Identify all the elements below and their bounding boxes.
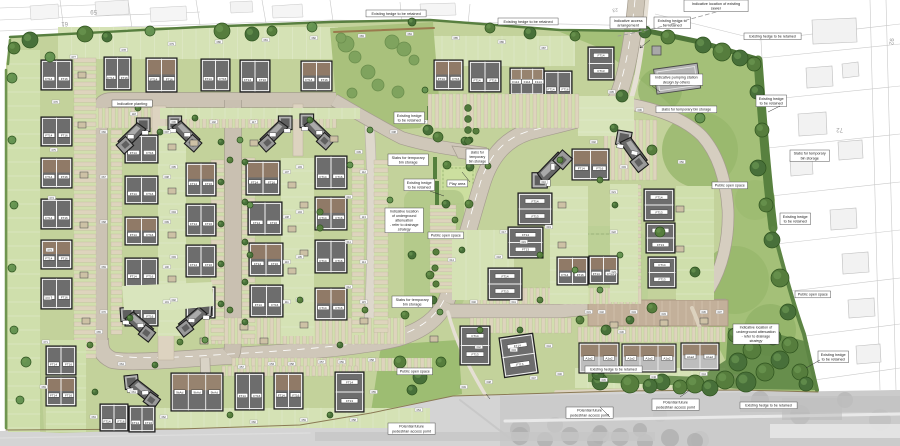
- svg-text:080: 080: [217, 40, 222, 44]
- svg-text:FT14: FT14: [130, 233, 137, 237]
- svg-text:pedestrian access point: pedestrian access point: [570, 413, 609, 417]
- svg-text:098: 098: [165, 175, 170, 179]
- svg-text:FT16: FT16: [321, 78, 328, 82]
- svg-text:103: 103: [298, 165, 303, 169]
- svg-text:FT14: FT14: [438, 77, 445, 81]
- svg-text:018: 018: [497, 255, 502, 259]
- svg-text:FT16: FT16: [596, 167, 603, 171]
- svg-text:068: 068: [102, 220, 107, 224]
- svg-text:F114: F114: [524, 80, 531, 84]
- svg-text:C40: C40: [651, 375, 656, 379]
- svg-text:062: 062: [162, 415, 167, 419]
- svg-text:FT14: FT14: [103, 420, 110, 424]
- svg-text:FT16: FT16: [561, 88, 568, 92]
- svg-text:FT14: FT14: [50, 363, 57, 367]
- svg-text:108: 108: [285, 215, 290, 219]
- svg-text:Existing hedge: Existing hedge: [397, 114, 422, 118]
- svg-text:FT14: FT14: [346, 380, 353, 384]
- svg-text:Indicative access: Indicative access: [614, 19, 643, 23]
- svg-text:047: 047: [532, 376, 537, 380]
- svg-text:019: 019: [547, 225, 552, 229]
- svg-text:095: 095: [172, 165, 177, 169]
- svg-text:112: 112: [362, 170, 367, 174]
- svg-text:100: 100: [165, 265, 170, 269]
- svg-text:107: 107: [285, 170, 290, 174]
- svg-text:FT16: FT16: [146, 151, 153, 155]
- svg-text:FT16: FT16: [146, 275, 153, 279]
- svg-text:101: 101: [165, 300, 170, 304]
- svg-text:030: 030: [620, 330, 625, 334]
- svg-text:059: 059: [302, 418, 307, 422]
- svg-text:069: 069: [102, 265, 107, 269]
- svg-text:FT14: FT14: [45, 77, 52, 81]
- svg-text:037: 037: [718, 310, 723, 314]
- svg-text:003: 003: [622, 165, 627, 169]
- svg-text:064: 064: [120, 362, 125, 366]
- svg-text:FT14: FT14: [45, 134, 52, 138]
- svg-text:FT16: FT16: [61, 216, 68, 220]
- svg-text:FT13: FT13: [471, 353, 478, 357]
- svg-text:071: 071: [44, 340, 49, 344]
- svg-text:008: 008: [392, 130, 397, 134]
- svg-text:Slabs for temporary: Slabs for temporary: [794, 152, 826, 156]
- svg-text:FT14: FT14: [130, 275, 137, 279]
- svg-text:to be retained: to be retained: [398, 119, 421, 123]
- svg-text:099: 099: [165, 220, 170, 224]
- svg-text:104: 104: [298, 210, 303, 214]
- svg-text:FT14: FT14: [150, 77, 157, 81]
- svg-text:074: 074: [50, 196, 55, 200]
- svg-text:FT14: FT14: [578, 167, 585, 171]
- svg-text:087: 087: [542, 46, 547, 50]
- svg-text:Indicative location of: Indicative location of: [740, 326, 773, 330]
- svg-text:063: 063: [92, 415, 97, 419]
- svg-text:FT14: FT14: [531, 199, 538, 203]
- svg-text:72: 72: [836, 126, 843, 132]
- svg-text:Potential future: Potential future: [399, 425, 424, 429]
- svg-text:042: 042: [477, 345, 482, 349]
- svg-text:F114: F114: [512, 80, 519, 84]
- svg-text:086: 086: [500, 40, 505, 44]
- svg-text:072: 072: [46, 296, 51, 300]
- svg-text:082: 082: [312, 36, 317, 40]
- svg-text:FT14: FT14: [190, 222, 197, 226]
- svg-text:FT14: FT14: [107, 76, 114, 80]
- svg-text:FT13: FT13: [531, 214, 538, 218]
- svg-text:FT14: FT14: [130, 192, 137, 196]
- svg-text:Existing hedge: Existing hedge: [783, 215, 808, 219]
- svg-text:077: 077: [72, 55, 77, 59]
- svg-text:Slabs for temporary: Slabs for temporary: [392, 156, 425, 160]
- svg-text:049: 049: [462, 385, 467, 389]
- svg-text:FT16: FT16: [61, 175, 68, 179]
- svg-text:FT16: FT16: [489, 79, 496, 83]
- svg-text:slabs for: slabs for: [471, 151, 485, 155]
- svg-text:9bAd: 9bAd: [193, 390, 201, 394]
- svg-text:FT14: FT14: [45, 216, 52, 220]
- svg-text:FT13: FT13: [597, 69, 604, 73]
- svg-text:102: 102: [212, 120, 217, 124]
- svg-text:065: 065: [97, 330, 102, 334]
- svg-text:FT16: FT16: [292, 393, 299, 397]
- svg-text:114: 114: [362, 260, 367, 264]
- svg-text:FT16: FT16: [205, 263, 212, 267]
- svg-text:A1a2: A1a2: [645, 356, 653, 360]
- svg-text:A1a2: A1a2: [663, 356, 671, 360]
- svg-text:FT14: FT14: [253, 221, 260, 225]
- svg-text:096: 096: [172, 120, 177, 124]
- svg-text:FT16: FT16: [253, 394, 260, 398]
- svg-text:strategy: strategy: [750, 339, 763, 343]
- svg-text:044: 044: [702, 372, 707, 376]
- svg-text:017: 017: [502, 230, 507, 234]
- svg-text:040: 040: [472, 300, 477, 304]
- svg-text:014: 014: [450, 258, 455, 262]
- svg-text:FT14: FT14: [319, 259, 326, 263]
- svg-text:pedestrian access point: pedestrian access point: [392, 429, 431, 433]
- svg-text:FT16: FT16: [271, 262, 278, 266]
- svg-text:FT16: FT16: [271, 303, 278, 307]
- svg-text:- refer to drainage: - refer to drainage: [390, 223, 419, 227]
- svg-text:009: 009: [357, 150, 362, 154]
- svg-text:046: 046: [558, 372, 563, 376]
- svg-text:FT14: FT14: [593, 272, 600, 276]
- svg-text:FT14: FT14: [561, 273, 568, 277]
- svg-text:to be retained: to be retained: [784, 220, 807, 224]
- svg-text:A1a2: A1a2: [687, 355, 695, 359]
- svg-text:FT16: FT16: [452, 77, 459, 81]
- svg-text:044: 044: [547, 344, 552, 348]
- svg-text:010: 010: [347, 195, 352, 199]
- svg-text:C56: C56: [269, 362, 274, 366]
- svg-text:097: 097: [165, 130, 170, 134]
- svg-text:Existing hedge to be retained: Existing hedge to be retained: [745, 404, 792, 408]
- svg-text:FT14: FT14: [473, 79, 480, 83]
- svg-text:Indicative location of existin: Indicative location of existing: [692, 2, 740, 6]
- svg-text:bin storage: bin storage: [801, 156, 819, 160]
- svg-text:079: 079: [170, 42, 175, 46]
- svg-text:067: 067: [102, 175, 107, 179]
- svg-text:FT16: FT16: [61, 257, 68, 261]
- svg-text:FT13: FT13: [522, 248, 529, 252]
- svg-text:FT14: FT14: [278, 393, 285, 397]
- svg-text:59: 59: [90, 8, 97, 14]
- svg-text:design by others: design by others: [663, 80, 690, 84]
- svg-text:Potential future: Potential future: [577, 409, 602, 413]
- svg-text:066: 066: [102, 130, 107, 134]
- svg-text:073: 073: [48, 248, 53, 252]
- svg-text:FT16: FT16: [335, 216, 342, 220]
- svg-text:FT14: FT14: [501, 274, 508, 278]
- svg-text:slabs for temporary bin storag: slabs for temporary bin storage: [662, 108, 712, 112]
- svg-text:A1a2: A1a2: [627, 356, 635, 360]
- svg-text:005: 005: [610, 90, 615, 94]
- svg-text:Public open space: Public open space: [400, 370, 430, 374]
- svg-text:arrangement: arrangement: [617, 24, 639, 28]
- svg-text:FT16: FT16: [219, 77, 226, 81]
- svg-text:FT14: FT14: [130, 151, 137, 155]
- svg-text:057: 057: [320, 360, 325, 364]
- svg-text:054: 054: [417, 408, 422, 412]
- svg-text:036: 036: [702, 310, 707, 314]
- svg-text:FT16: FT16: [268, 180, 275, 184]
- svg-text:FT16: FT16: [145, 421, 152, 425]
- svg-text:pedestrian access point: pedestrian access point: [656, 405, 695, 409]
- svg-text:021: 021: [612, 190, 617, 194]
- svg-text:Existing hedge: Existing hedge: [821, 353, 846, 357]
- svg-text:FT14: FT14: [471, 334, 478, 338]
- svg-text:of underground: of underground: [392, 214, 416, 218]
- svg-text:FT14: FT14: [190, 182, 197, 186]
- svg-text:A1a2: A1a2: [585, 356, 593, 360]
- svg-text:002: 002: [592, 140, 597, 144]
- svg-text:031: 031: [587, 310, 592, 314]
- svg-text:Existing hedge to be retained: Existing hedge to be retained: [749, 35, 796, 39]
- svg-text:056: 056: [340, 360, 345, 364]
- svg-text:FT14: FT14: [239, 394, 246, 398]
- svg-text:FT14: FT14: [319, 216, 326, 220]
- svg-text:FT16: FT16: [205, 182, 212, 186]
- svg-text:92: 92: [887, 38, 894, 46]
- svg-text:FT14: FT14: [319, 175, 326, 179]
- svg-text:FT16: FT16: [65, 363, 72, 367]
- svg-text:023: 023: [612, 270, 617, 274]
- svg-text:FT13: FT13: [655, 210, 662, 214]
- svg-text:Potential future: Potential future: [663, 401, 688, 405]
- svg-text:FT16: FT16: [335, 259, 342, 263]
- svg-text:FT16: FT16: [65, 394, 72, 398]
- svg-text:FT14: FT14: [522, 233, 529, 237]
- svg-text:Play area: Play area: [449, 182, 466, 186]
- svg-text:111: 111: [285, 300, 289, 304]
- svg-text:9bAd: 9bAd: [211, 390, 219, 394]
- svg-text:FT16: FT16: [270, 221, 277, 225]
- svg-text:FT16: FT16: [117, 420, 124, 424]
- svg-text:FT16: FT16: [61, 77, 68, 81]
- svg-text:016: 016: [542, 180, 547, 184]
- svg-text:FT14: FT14: [45, 257, 52, 261]
- svg-text:FT16: FT16: [577, 273, 584, 277]
- svg-text:110: 110: [285, 260, 290, 264]
- svg-text:FT14: FT14: [255, 303, 262, 307]
- svg-text:- refer to drainage: - refer to drainage: [742, 335, 771, 339]
- svg-text:117: 117: [252, 120, 257, 124]
- svg-text:Existing hedge to be retained: Existing hedge to be retained: [504, 20, 553, 24]
- svg-text:strategy: strategy: [398, 228, 411, 232]
- svg-text:Existing hedge to be retained: Existing hedge to be retained: [372, 12, 421, 16]
- svg-text:022: 022: [612, 230, 617, 234]
- svg-text:sewer: sewer: [711, 7, 722, 11]
- svg-text:FT16: FT16: [61, 134, 68, 138]
- svg-text:Public open space: Public open space: [798, 293, 828, 297]
- svg-text:081: 081: [264, 38, 269, 42]
- svg-text:to be retained: to be retained: [408, 186, 431, 190]
- svg-text:FT14: FT14: [254, 262, 261, 266]
- svg-text:075: 075: [52, 148, 57, 152]
- svg-text:temporary: temporary: [470, 155, 486, 159]
- svg-text:FT16: FT16: [205, 222, 212, 226]
- svg-text:011: 011: [347, 240, 352, 244]
- svg-text:033: 033: [662, 312, 667, 316]
- svg-text:FT16: FT16: [146, 233, 153, 237]
- svg-text:012: 012: [347, 285, 352, 289]
- svg-text:061: 061: [132, 390, 137, 394]
- svg-text:118: 118: [132, 112, 137, 116]
- svg-text:060: 060: [252, 420, 257, 424]
- svg-text:050: 050: [680, 160, 685, 164]
- svg-text:Existing hedge: Existing hedge: [407, 181, 432, 185]
- svg-text:Existing hedge to: Existing hedge to: [658, 19, 687, 23]
- svg-text:058: 058: [290, 362, 295, 366]
- svg-text:FT14: FT14: [132, 421, 139, 425]
- svg-text:076: 076: [54, 100, 59, 104]
- svg-text:Indicative location: Indicative location: [390, 210, 419, 214]
- svg-text:032: 032: [600, 310, 605, 314]
- svg-text:Existing hedge to be retained: Existing hedge to be retained: [590, 368, 637, 372]
- svg-text:attenuation: attenuation: [395, 219, 413, 223]
- svg-text:084: 084: [408, 32, 413, 36]
- svg-text:FT14: FT14: [597, 54, 604, 58]
- svg-text:FT16: FT16: [61, 296, 68, 300]
- svg-text:058: 058: [352, 418, 357, 422]
- svg-text:078: 078: [122, 48, 127, 52]
- svg-text:FT13: FT13: [501, 289, 508, 293]
- svg-text:094: 094: [172, 210, 177, 214]
- svg-text:048: 048: [487, 380, 492, 384]
- svg-text:FT16: FT16: [166, 77, 173, 81]
- svg-text:FT14: FT14: [305, 78, 312, 82]
- svg-text:bin storage: bin storage: [469, 159, 486, 163]
- svg-text:034: 034: [632, 310, 637, 314]
- svg-text:61: 61: [61, 20, 68, 26]
- svg-text:FT16: FT16: [121, 76, 128, 80]
- svg-text:FT13: FT13: [346, 399, 353, 403]
- svg-text:069: 069: [42, 385, 47, 389]
- svg-text:Indicative planting: Indicative planting: [117, 102, 147, 106]
- svg-text:9bAd: 9bAd: [176, 390, 184, 394]
- svg-text:FT14: FT14: [655, 195, 662, 199]
- svg-text:FT14: FT14: [319, 306, 326, 310]
- svg-text:055: 055: [372, 390, 377, 394]
- svg-text:F114: F114: [535, 80, 542, 84]
- svg-text:FT16: FT16: [335, 175, 342, 179]
- svg-text:A1a2: A1a2: [706, 355, 714, 359]
- svg-text:FT16: FT16: [146, 192, 153, 196]
- svg-text:FT14: FT14: [45, 175, 52, 179]
- svg-text:FT14: FT14: [50, 394, 57, 398]
- svg-text:Public open space: Public open space: [715, 184, 745, 188]
- svg-text:Public open space: Public open space: [431, 234, 461, 238]
- svg-text:113: 113: [362, 215, 367, 219]
- svg-text:105: 105: [298, 255, 303, 259]
- svg-text:Indicative pumping station: Indicative pumping station: [655, 76, 698, 80]
- svg-text:FT14: FT14: [251, 180, 258, 184]
- svg-text:006: 006: [638, 108, 643, 112]
- svg-text:083: 083: [360, 34, 365, 38]
- svg-text:115: 115: [362, 300, 367, 304]
- svg-text:Slabs for temporary: Slabs for temporary: [396, 298, 429, 302]
- svg-text:070: 070: [102, 310, 107, 314]
- svg-text:FT16: FT16: [335, 306, 342, 310]
- svg-text:FT14: FT14: [547, 88, 554, 92]
- svg-text:FT14: FT14: [658, 263, 665, 267]
- svg-text:underground attenuation: underground attenuation: [736, 330, 775, 334]
- svg-text:092: 092: [172, 298, 177, 302]
- svg-text:041: 041: [512, 300, 517, 304]
- svg-text:057: 057: [240, 365, 245, 369]
- svg-text:bin storage: bin storage: [403, 303, 422, 307]
- svg-text:FT16: FT16: [146, 315, 153, 319]
- svg-text:to be retained: to be retained: [822, 358, 845, 362]
- svg-text:FT14: FT14: [244, 78, 251, 82]
- svg-text:Existing hedge: Existing hedge: [759, 97, 784, 101]
- svg-text:FT14: FT14: [190, 263, 197, 267]
- svg-text:bin storage: bin storage: [399, 161, 418, 165]
- svg-text:085: 085: [454, 36, 459, 40]
- svg-text:093: 093: [172, 255, 177, 259]
- svg-text:to be retained: to be retained: [760, 102, 783, 106]
- svg-text:045: 045: [602, 378, 607, 382]
- svg-text:FT13: FT13: [657, 243, 664, 247]
- svg-text:FT14: FT14: [205, 77, 212, 81]
- svg-text:FT13: FT13: [658, 278, 665, 282]
- svg-text:FT16: FT16: [259, 78, 266, 82]
- svg-text:A1a2: A1a2: [605, 356, 613, 360]
- svg-text:015: 015: [522, 240, 527, 244]
- svg-text:043: 043: [512, 348, 517, 352]
- svg-text:058: 058: [370, 358, 375, 362]
